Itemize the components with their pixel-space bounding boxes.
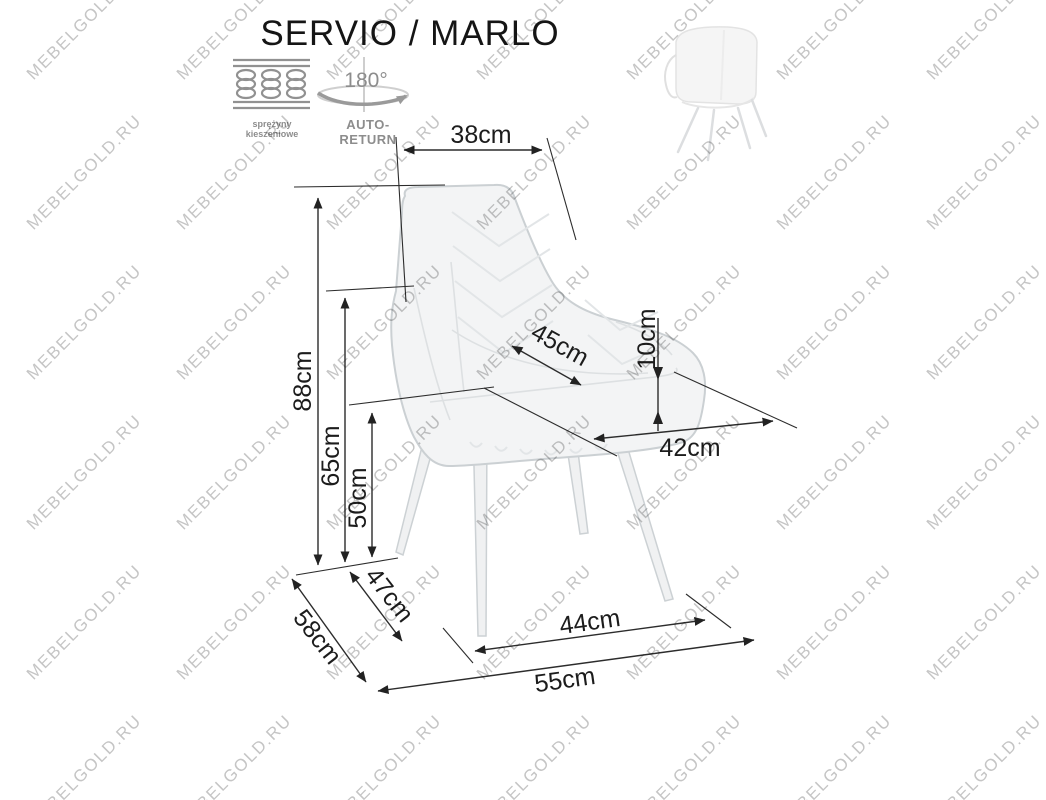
label-total-height: 88cm bbox=[289, 350, 317, 411]
chair-thumbnail bbox=[665, 27, 766, 160]
springs-label: sprężyny kieszeniowe bbox=[226, 119, 318, 139]
chair-diagram-svg: 180° bbox=[0, 0, 1046, 800]
page-title: SERVIO / MARLO bbox=[240, 14, 580, 54]
rotate-180-icon: 180° bbox=[318, 57, 408, 112]
label-total-depth: 58cm bbox=[287, 604, 347, 669]
diagram-page: MEBELGOLD.RUMEBELGOLD.RUMEBELGOLD.RUMEBE… bbox=[0, 0, 1046, 800]
label-base-depth: 47cm bbox=[359, 562, 419, 627]
label-total-width: 55cm bbox=[533, 662, 597, 698]
label-base-width: 44cm bbox=[558, 604, 622, 640]
rotation-degrees-label: 180° bbox=[344, 69, 387, 92]
pocket-springs-icon bbox=[233, 60, 310, 108]
label-cushion-height: 10cm bbox=[633, 308, 661, 369]
label-arm-height: 65cm bbox=[317, 425, 345, 486]
label-seat-height: 50cm bbox=[344, 467, 372, 528]
auto-return-label: AUTO-RETURN bbox=[318, 117, 418, 147]
label-seat-depth: 42cm bbox=[659, 434, 720, 462]
label-back-width: 38cm bbox=[450, 121, 511, 149]
